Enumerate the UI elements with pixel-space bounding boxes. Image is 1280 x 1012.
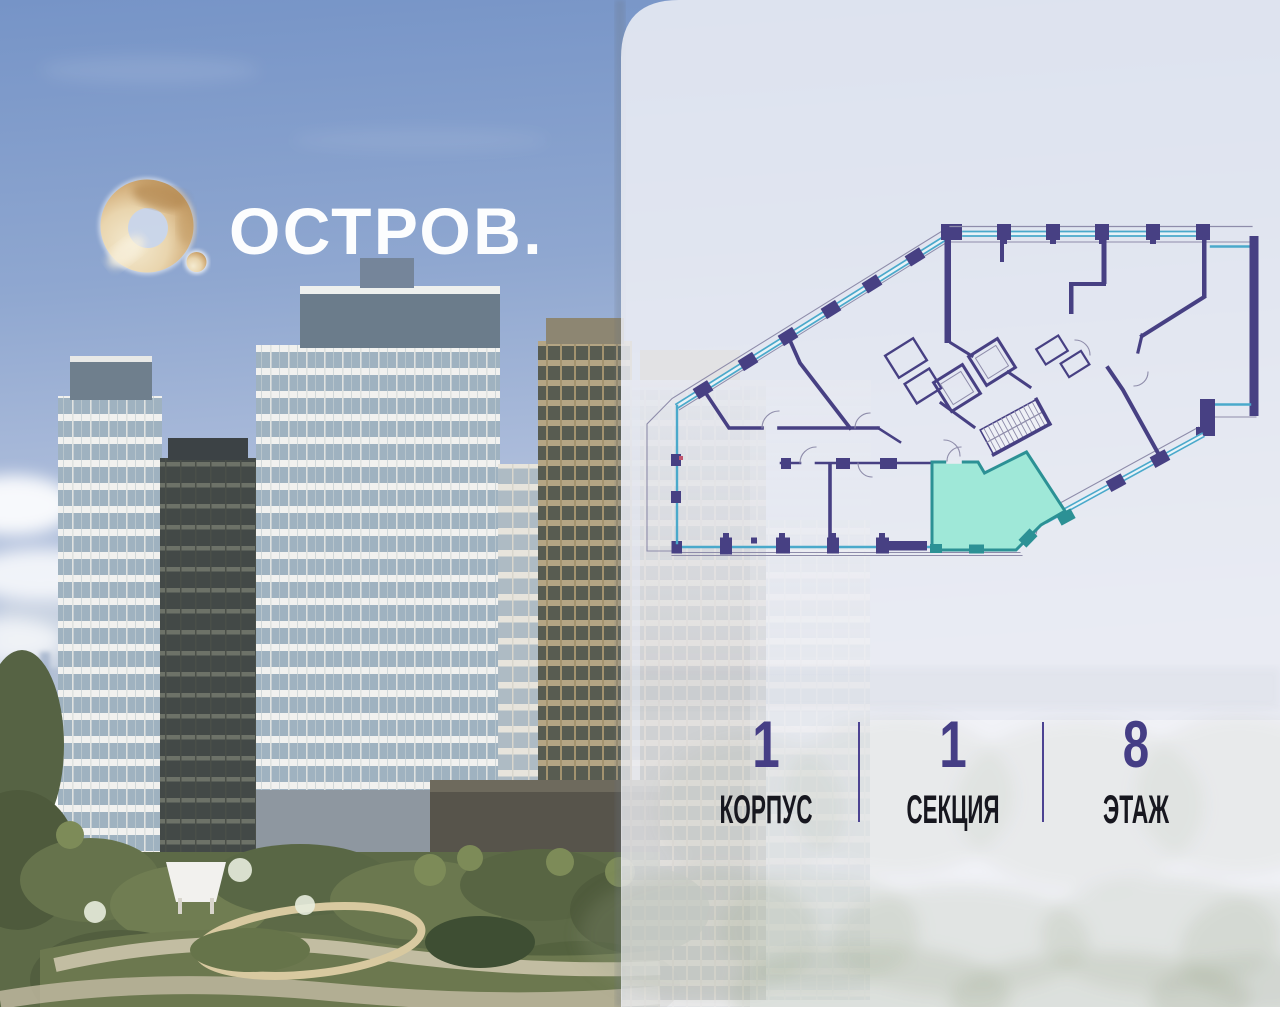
svg-text:СЕКЦИЯ: СЕКЦИЯ	[907, 788, 1000, 832]
svg-text:КОРПУС: КОРПУС	[720, 788, 813, 832]
svg-text:ОСТРОВ.: ОСТРОВ.	[229, 194, 544, 268]
svg-text:8: 8	[1123, 708, 1149, 781]
svg-text:1: 1	[939, 708, 967, 782]
svg-text:1: 1	[752, 708, 780, 782]
svg-text:ЭТАЖ: ЭТАЖ	[1103, 788, 1169, 832]
